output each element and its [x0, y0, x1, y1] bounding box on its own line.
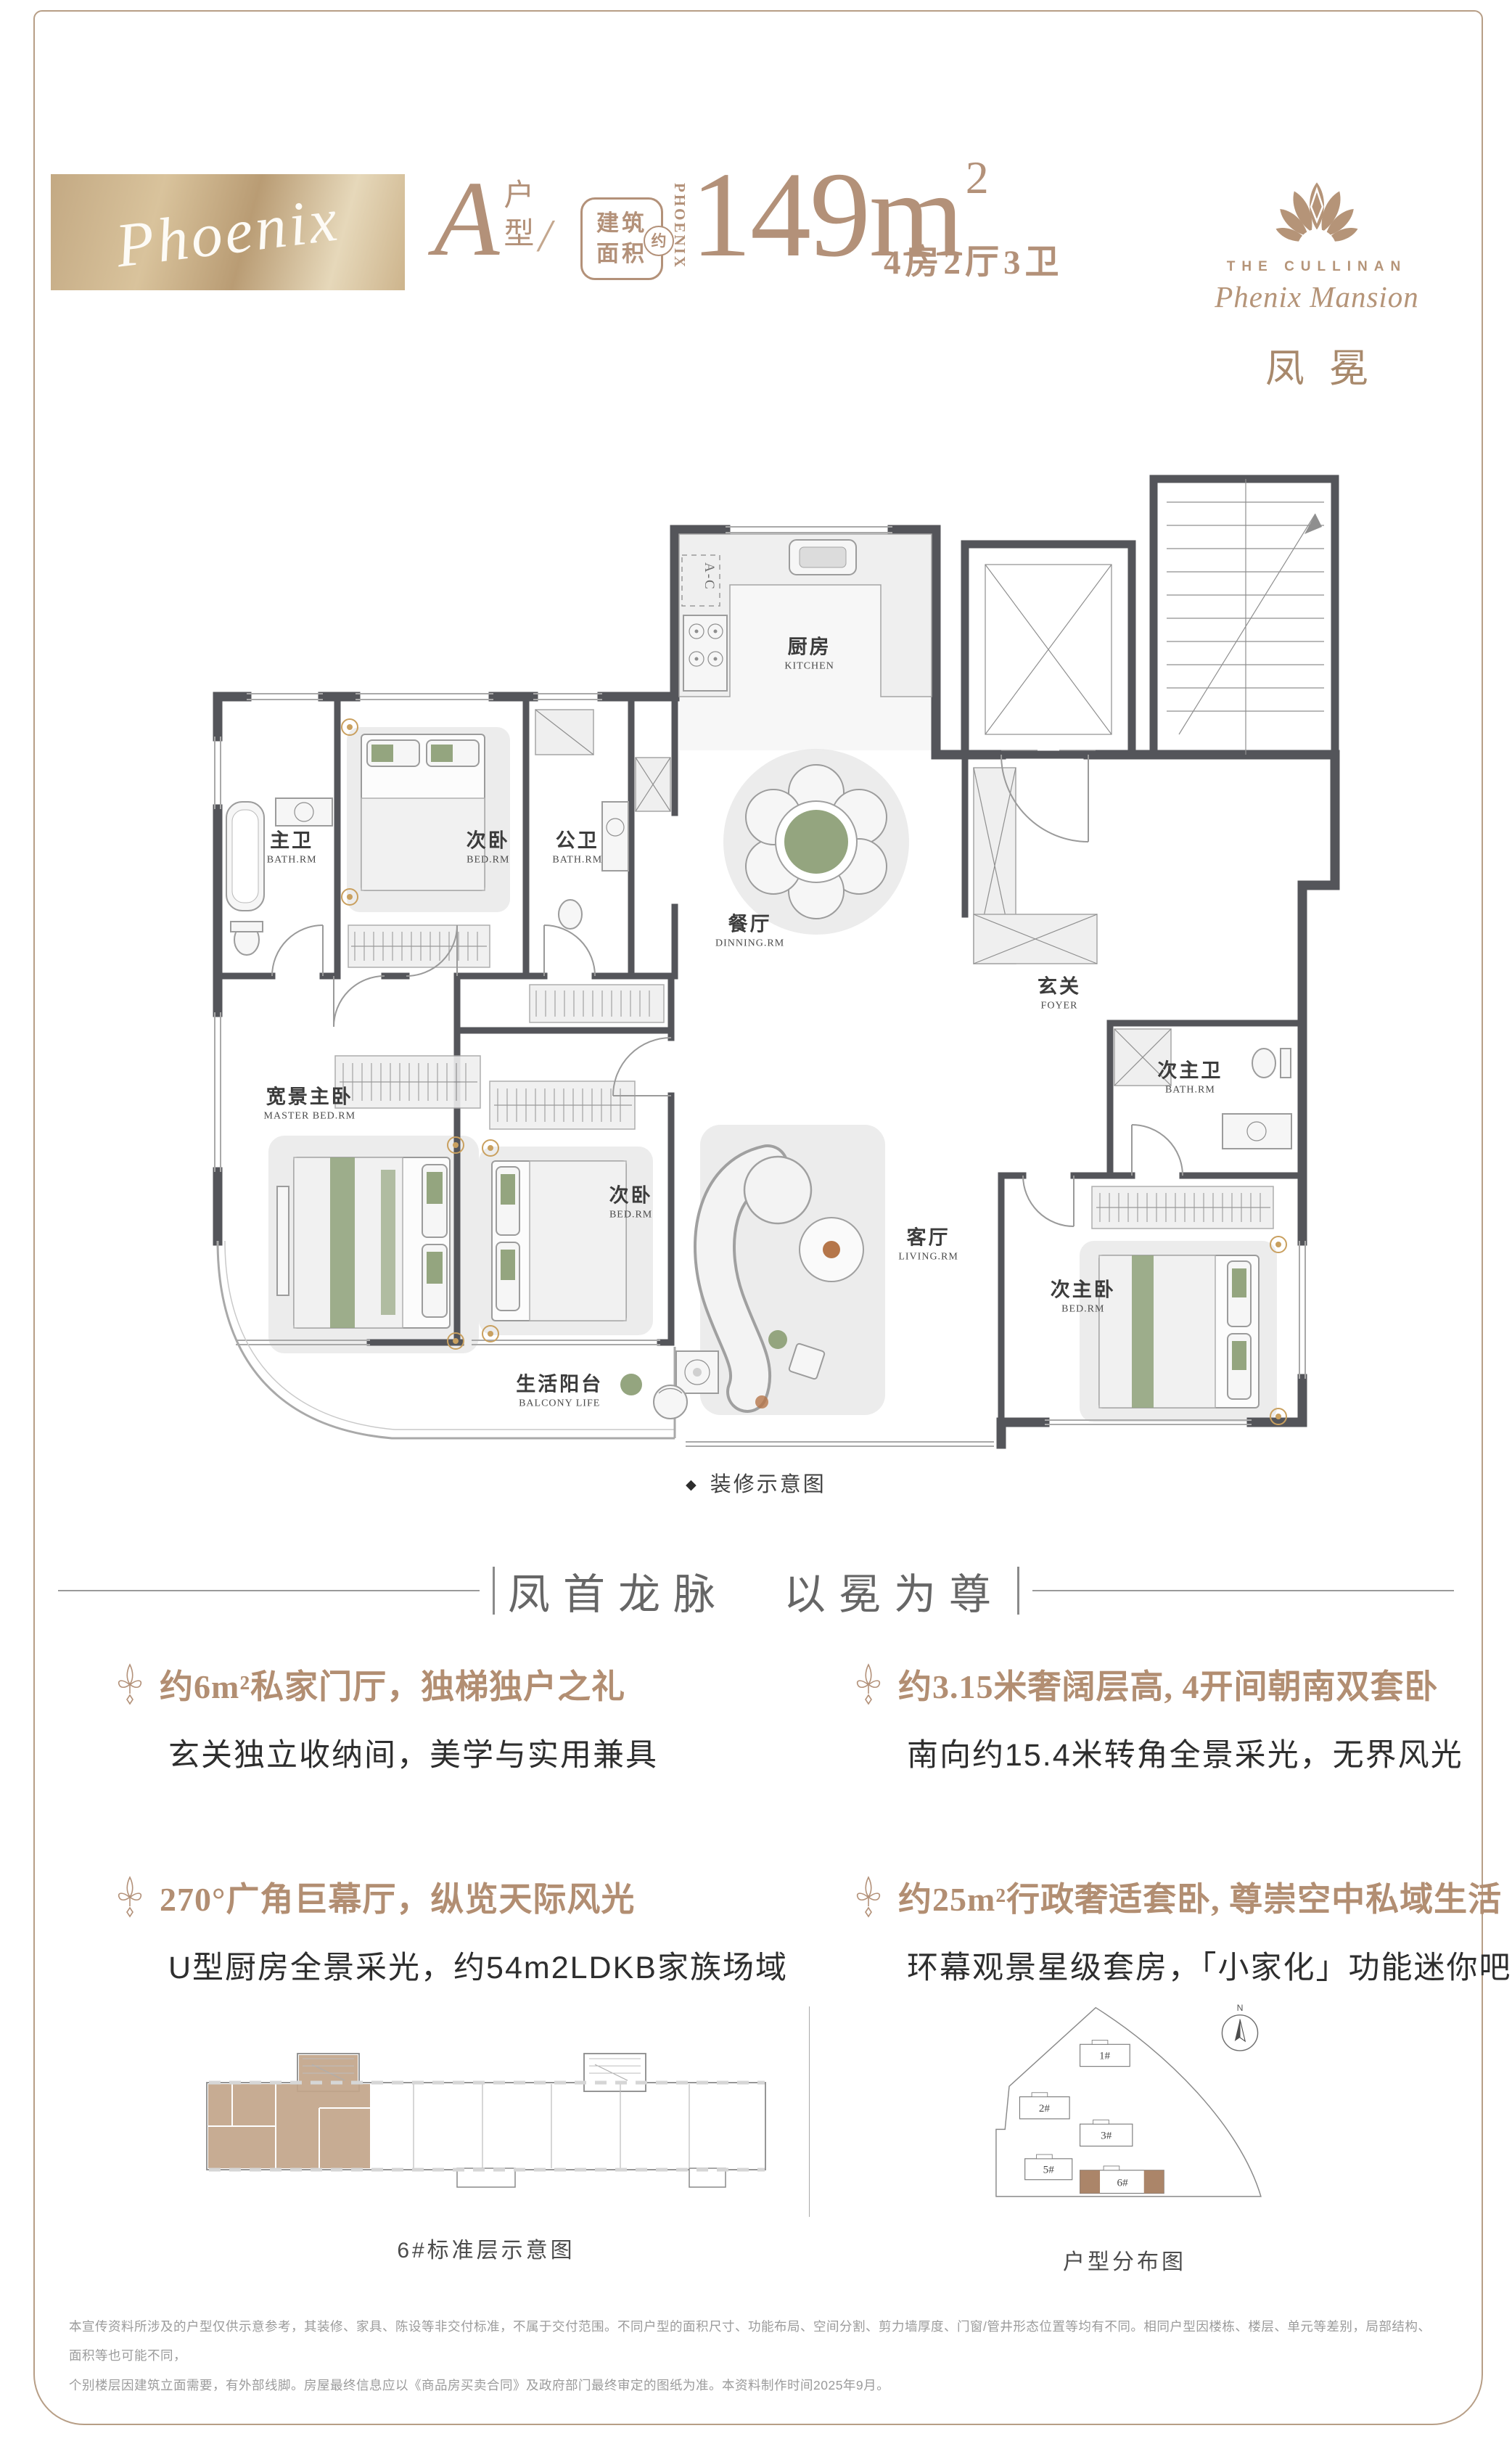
room-label-suite-bath: 次主卫BATH.RM	[1157, 1054, 1223, 1096]
building-label-2: 2#	[1039, 2102, 1051, 2115]
area-superscript: 2	[966, 152, 989, 203]
section-heading: 凤首龙脉 以冕为尊	[58, 1560, 1454, 1621]
room-label-balcony: 生活阳台BALCONY LIFE	[516, 1368, 603, 1409]
elevator-icon	[965, 544, 1132, 755]
heading-bar-left	[493, 1567, 495, 1615]
feature-desc: U型厨房全景采光，约54m2LDKB家族场域	[160, 1943, 788, 1988]
bed-top	[342, 719, 485, 905]
ac-label: A-C	[702, 562, 717, 591]
room-label-master-bath: 主卫BATH.RM	[267, 824, 317, 866]
room-label-bed-center: 次卧BED.RM	[609, 1180, 653, 1221]
washing-machine-icon	[676, 1351, 718, 1393]
brand-en-small: THE CULLINAN	[1201, 259, 1433, 275]
compass-n-label: N	[1237, 2003, 1244, 2013]
feature-title: 约25m²行政奢适套卧, 尊崇空中私域生活	[898, 1873, 1512, 1921]
room-label-bed-top: 次卧BED.RM	[467, 824, 510, 866]
foyer-cabinet	[974, 768, 1097, 964]
standard-floor-diagram: 6#标准层示意图	[167, 1992, 805, 2264]
building-label-3: 3#	[1101, 2129, 1112, 2141]
hallway-cabinet	[636, 758, 670, 811]
palmette-icon	[853, 1660, 884, 1707]
master-bath-fixtures	[226, 798, 332, 955]
stairs-icon	[1154, 479, 1335, 755]
cullinan-petal-logo-icon	[1255, 163, 1379, 247]
room-label-master-bed: 宽景主卧MASTER BED.RM	[264, 1080, 356, 1122]
feature-desc: 玄关独立收纳间，美学与实用兼具	[160, 1730, 788, 1775]
palmette-icon	[853, 1873, 884, 1919]
phoenix-vertical-text: PHOENIX	[670, 183, 689, 313]
feature-desc: 环幕观景星级套房，「小家化」功能迷你吧	[898, 1943, 1512, 1988]
disclaimer-line2: 个别楼层因建筑立面需要，有外部线脚。房屋最终信息应以《商品房买卖合同》及政府部门…	[69, 2371, 1443, 2400]
unit-slash: /	[538, 209, 551, 263]
feature-desc: 南向约15.4米转角全景采光，无界风光	[898, 1730, 1512, 1775]
unit-type-label: 户型	[504, 177, 537, 253]
heading-text: 凤首龙脉 以冕为尊	[508, 1560, 1004, 1621]
floor-diagram-caption: 6#标准层示意图	[167, 2232, 805, 2264]
approx-circle: 约	[644, 226, 674, 256]
phoenix-script-text: Phoenix	[112, 182, 344, 282]
site-plan-caption: 户型分布图	[874, 2244, 1375, 2276]
feature-living: 270°广角巨幕厅，纵览天际风光 U型厨房全景采光，约54m2LDKB家族场域	[115, 1873, 788, 1988]
palmette-icon	[115, 1660, 145, 1707]
heading-line-right	[1032, 1590, 1454, 1591]
feature-title: 约6m²私家门厅，独梯独户之礼	[160, 1660, 788, 1708]
highlighted-building-6: 6#	[1080, 2166, 1164, 2194]
building-label-6: 6#	[1117, 2176, 1129, 2189]
room-label-living: 客厅LIVING.RM	[898, 1222, 958, 1263]
stove-icon	[683, 615, 727, 691]
bottom-diagrams: 6#标准层示意图 N 1# 2# 3#	[0, 1992, 1512, 2282]
room-label-kitchen: 厨房KITCHEN	[784, 631, 834, 673]
disclaimer: 本宣传资料所涉及的户型仅供示意参考，其装修、家具、陈设等非交付标准，不属于交付范…	[69, 2312, 1443, 2400]
brand-en: Phenix Mansion	[1201, 279, 1433, 314]
feature-suite: 约25m²行政奢适套卧, 尊崇空中私域生活 环幕观景星级套房，「小家化」功能迷你…	[853, 1873, 1512, 1988]
badge-line2: 面积	[596, 239, 647, 269]
bed-right	[1099, 1237, 1286, 1424]
building-label-1: 1#	[1099, 2050, 1111, 2062]
unit-letter: A	[434, 165, 499, 273]
brand-logo-block: THE CULLINAN Phenix Mansion 凤冕	[1201, 163, 1433, 393]
disclaimer-line1: 本宣传资料所涉及的户型仅供示意参考，其装修、家具、陈设等非交付标准，不属于交付范…	[69, 2312, 1443, 2371]
feature-height: 约3.15米奢阔层高, 4开间朝南双套卧 南向约15.4米转角全景采光，无界风光	[853, 1660, 1512, 1775]
public-bath-fixtures	[535, 710, 628, 929]
bed-center	[482, 1140, 626, 1342]
heading-line-left	[58, 1590, 480, 1591]
standard-floor-svg	[189, 2021, 784, 2211]
building-label-5: 5#	[1043, 2163, 1055, 2176]
feature-title: 约3.15米奢阔层高, 4开间朝南双套卧	[898, 1660, 1512, 1708]
floor-plan: A-C	[167, 406, 1357, 1451]
vertical-divider	[809, 2006, 810, 2217]
rooms-summary: 4房2厅3卫	[884, 234, 1064, 284]
badge-line1: 建筑	[596, 208, 647, 239]
feature-title: 270°广角巨幕厅，纵览天际风光	[160, 1873, 788, 1921]
room-label-dining: 餐厅DINNING.RM	[715, 909, 784, 950]
heading-bar-right	[1017, 1567, 1019, 1615]
room-label-foyer: 玄关FOYER	[1038, 971, 1081, 1012]
built-area-badge: 建筑 面积 约	[580, 197, 663, 280]
unit-type-block: A 户型 /	[434, 165, 551, 273]
bed-master	[277, 1137, 464, 1349]
brand-cn: 凤冕	[1201, 336, 1433, 393]
phoenix-banner: Phoenix	[51, 174, 405, 290]
diamond-icon: ◆	[686, 1477, 699, 1493]
feature-foyer: 约6m²私家门厅，独梯独户之礼 玄关独立收纳间，美学与实用兼具	[115, 1660, 788, 1775]
room-label-public-bath: 公卫BATH.RM	[552, 824, 602, 866]
site-plan-diagram: N 1# 2# 3# 5#	[874, 1992, 1375, 2276]
plan-caption: ◆装修示意图	[0, 1467, 1512, 1498]
room-label-suite-bed: 次主卧BED.RM	[1051, 1274, 1116, 1316]
compass-icon: N	[1222, 2003, 1257, 2051]
features-grid: 约6m²私家门厅，独梯独户之礼 玄关独立收纳间，美学与实用兼具 约3.15米奢阔…	[115, 1660, 1466, 1988]
palmette-icon	[115, 1873, 145, 1919]
site-plan-svg: N 1# 2# 3# 5#	[892, 1992, 1357, 2223]
